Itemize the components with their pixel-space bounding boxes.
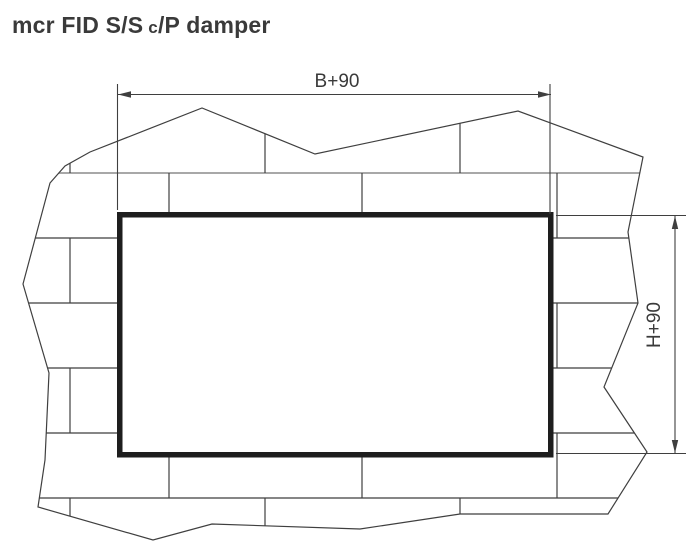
- damper-frame: [120, 215, 551, 455]
- damper-installation-drawing: B+90 H+90: [0, 0, 689, 554]
- arrowhead-right-icon: [538, 91, 551, 97]
- width-dimension-label: B+90: [315, 71, 360, 92]
- arrowhead-left-icon: [118, 91, 131, 97]
- dimension-width: B+90: [118, 71, 552, 214]
- height-dimension-label: H+90: [644, 302, 665, 348]
- dimension-height: H+90: [556, 216, 686, 454]
- arrowhead-down-icon: [672, 440, 678, 453]
- arrowhead-up-icon: [672, 216, 678, 229]
